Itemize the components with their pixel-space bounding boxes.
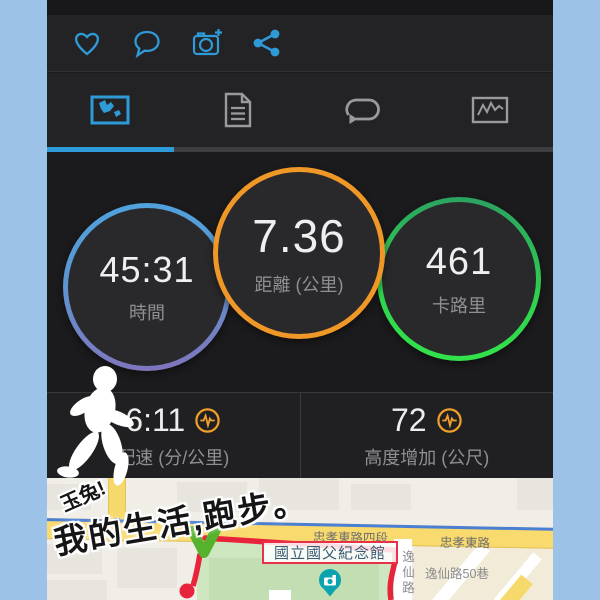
- tab-laps[interactable]: [300, 73, 427, 147]
- like-heart-icon[interactable]: [71, 27, 103, 59]
- app-window: 45:31 時間 461 卡路里 7.36 距離 (公里) 6:11: [47, 0, 553, 600]
- add-photo-camera-icon[interactable]: [191, 27, 223, 59]
- time-value: 45:31: [99, 249, 194, 291]
- tab-details[interactable]: [174, 73, 301, 147]
- map-poi-memorial-hall[interactable]: 國立國父紀念館: [262, 541, 398, 564]
- elevation-cell: 72 高度增加 (公尺): [300, 393, 554, 478]
- chart-line-icon: [470, 94, 510, 126]
- time-circle: 45:31 時間: [63, 203, 231, 371]
- calories-label: 卡路里: [432, 292, 486, 318]
- elevation-label: 高度增加 (公尺): [364, 444, 489, 470]
- share-icon[interactable]: [251, 27, 283, 59]
- status-bar: [47, 0, 553, 15]
- comment-icon[interactable]: [131, 27, 163, 59]
- elevation-pulse-icon: [436, 407, 463, 434]
- tab-snapshot[interactable]: [47, 73, 174, 147]
- time-label: 時間: [129, 299, 165, 325]
- runner-silhouette-sticker: [55, 366, 147, 490]
- summary-circles: 45:31 時間 461 卡路里 7.36 距離 (公里): [47, 152, 553, 392]
- distance-circle: 7.36 距離 (公里): [213, 167, 385, 339]
- elevation-value: 72: [391, 402, 427, 439]
- route-map[interactable]: 忠孝東路四段 忠孝東路 逸仙路50巷 逸仙路 國立國父紀念館 玉兔! 我的生活,…: [47, 478, 553, 600]
- calories-value: 461: [426, 241, 492, 284]
- action-bar: [47, 15, 553, 72]
- route-end-dot: [180, 584, 195, 599]
- notes-document-icon: [220, 91, 254, 129]
- calories-circle: 461 卡路里: [377, 197, 541, 361]
- snapshot-runner-icon: [88, 92, 132, 128]
- distance-label: 距離 (公里): [255, 271, 344, 297]
- pace-pulse-icon: [194, 407, 221, 434]
- tab-bar: [47, 73, 553, 147]
- distance-value: 7.36: [252, 209, 346, 263]
- tab-charts[interactable]: [427, 73, 554, 147]
- laps-loop-icon: [342, 94, 384, 126]
- photo-spot-pin-icon[interactable]: [318, 569, 342, 597]
